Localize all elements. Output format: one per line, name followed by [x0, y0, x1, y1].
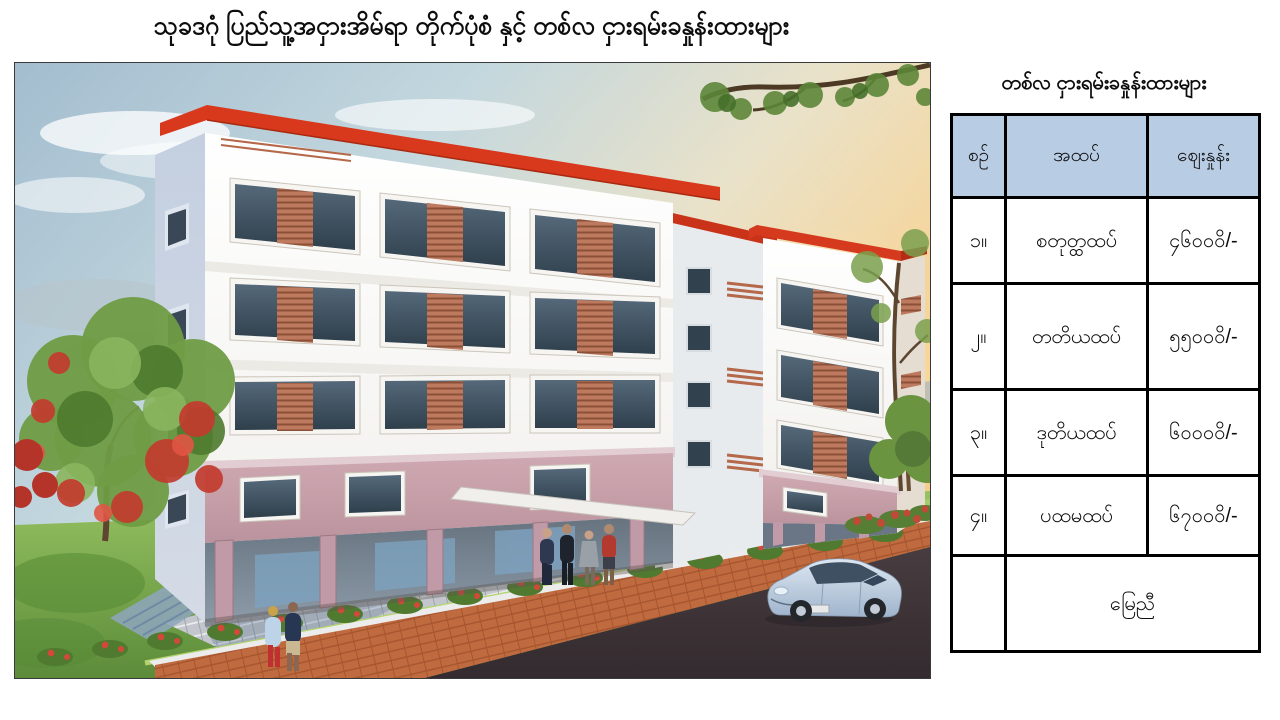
- row-price: ၅၅၀၀ဝိ/-: [1148, 284, 1260, 390]
- rates-header-row: စဉ် အထပ် ဈေးနှုန်း: [952, 115, 1260, 198]
- row-price: ၆၀၀၀ဝိ/-: [1148, 390, 1260, 476]
- rates-table: စဉ် အထပ် ဈေးနှုန်း ၁။ စတုတ္ထထပ် ၄၆၀၀ဝိ/-…: [950, 113, 1261, 653]
- row-no: ၁။: [952, 198, 1006, 284]
- rates-panel: တစ်လ ငှားရမ်းခနှုန်းထားများ စဉ် အထပ် ဈေး…: [950, 58, 1258, 653]
- row-floor: ပထမထပ်: [1006, 476, 1148, 556]
- row-floor: စတုတ္ထထပ်: [1006, 198, 1148, 284]
- row-no: ၄။: [952, 476, 1006, 556]
- footer-ground-floor-cell: မြေညီ: [1006, 556, 1260, 652]
- row-floor: တတိယထပ်: [1006, 284, 1148, 390]
- left-wing: [155, 105, 720, 627]
- footer-empty-cell: [952, 556, 1006, 652]
- table-row: ၁။ စတုတ္ထထပ် ၄၆၀၀ဝိ/-: [952, 198, 1260, 284]
- rates-table-title: တစ်လ ငှားရမ်းခနှုန်းထားများ: [950, 68, 1258, 98]
- right-wing-windows: [777, 278, 883, 486]
- column-header-no: စဉ်: [952, 115, 1006, 198]
- building-photo-frame: [14, 62, 931, 679]
- right-wing: [749, 225, 927, 549]
- table-row: ၃။ ဒုတိယထပ် ၆၀၀၀ဝိ/-: [952, 390, 1260, 476]
- page-title: သုခဒဂုံ ပြည်သူ့အငှားအိမ်ရာ တိုက်ပုံစံ နှ…: [14, 6, 929, 46]
- building-rendering: [15, 63, 930, 678]
- column-header-price: ဈေးနှုန်း: [1148, 115, 1260, 198]
- row-floor: ဒုတိယထပ်: [1006, 390, 1148, 476]
- row-price: ၆၇၀၀ဝိ/-: [1148, 476, 1260, 556]
- row-no: ၂။: [952, 284, 1006, 390]
- column-header-floor: အထပ်: [1006, 115, 1148, 198]
- table-footer-row: မြေညီ: [952, 556, 1260, 652]
- row-price: ၄၆၀၀ဝိ/-: [1148, 198, 1260, 284]
- row-no: ၃။: [952, 390, 1006, 476]
- table-row: ၄။ ပထမထပ် ၆၇၀၀ဝိ/-: [952, 476, 1260, 556]
- table-row: ၂။ တတိယထပ် ၅၅၀၀ဝိ/-: [952, 284, 1260, 390]
- left-wing-windows: [230, 178, 660, 435]
